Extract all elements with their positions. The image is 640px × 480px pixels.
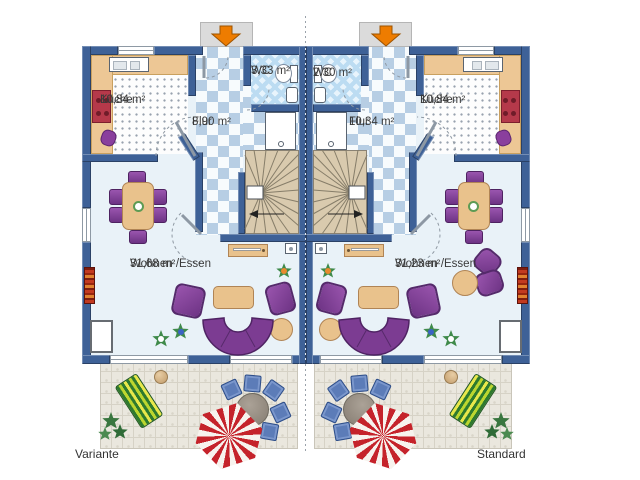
dining-chair xyxy=(488,207,503,223)
sideboard-knob xyxy=(347,249,350,252)
sink-drainer xyxy=(472,61,482,70)
kitchen-wall xyxy=(82,154,158,162)
window xyxy=(82,208,91,242)
flower-blossom xyxy=(158,336,164,342)
hall-floor-doorgap xyxy=(243,86,251,112)
dining-chair xyxy=(129,230,147,244)
flower-blossom xyxy=(178,329,184,335)
window xyxy=(521,208,530,242)
terrace-chair xyxy=(350,374,368,392)
sideboard xyxy=(344,244,384,257)
armchair xyxy=(405,282,442,320)
kitchen-wall xyxy=(416,55,424,96)
wc-wall xyxy=(251,104,299,112)
terrace-window xyxy=(110,355,188,364)
flower-blossom xyxy=(325,268,331,274)
beach-ball xyxy=(444,370,458,384)
wall xyxy=(243,46,306,55)
closet-knob xyxy=(328,141,334,147)
dining-chair xyxy=(465,230,483,244)
wc-wall xyxy=(243,55,251,86)
caption-standard: Standard xyxy=(477,447,526,461)
stair-wall xyxy=(306,234,392,242)
sideboard xyxy=(228,244,268,257)
window xyxy=(118,46,154,55)
kitchen-sink xyxy=(109,57,149,72)
stair-wall xyxy=(220,234,306,242)
hall-closet xyxy=(316,112,347,150)
hall-closet xyxy=(265,112,296,150)
wc-wall xyxy=(313,104,361,112)
dining-table xyxy=(458,182,490,230)
wall xyxy=(188,355,230,364)
kitchen-sink xyxy=(463,57,503,72)
beach-ball xyxy=(154,370,168,384)
floorplan-canvas: Küche 10,84 m² Flur 8,90 m² WC 3,33 m² W… xyxy=(0,0,640,480)
room-area: 31,68 m² xyxy=(130,255,175,274)
flower-blossom xyxy=(448,336,454,342)
side-table xyxy=(270,318,293,341)
caption-variante: Variante xyxy=(75,447,119,461)
wall xyxy=(409,46,458,55)
wall-niche xyxy=(499,320,522,353)
sideboard-knob xyxy=(262,249,265,252)
table-flowers xyxy=(468,201,479,212)
dining-chair xyxy=(152,189,167,205)
wall-niche xyxy=(90,320,113,353)
room-area: 3,33 m² xyxy=(251,62,290,81)
wall xyxy=(521,46,530,208)
wc-washbasin xyxy=(314,87,326,103)
flower-blossom xyxy=(428,329,434,335)
stair-wall xyxy=(367,172,374,234)
room-area: 31,23 m² xyxy=(395,255,440,274)
sink-drainer xyxy=(130,61,140,70)
party-wall-axis xyxy=(305,48,306,362)
coffee-table xyxy=(358,286,399,309)
dining-chair xyxy=(488,189,503,205)
hall-floor xyxy=(196,47,243,235)
window xyxy=(458,46,494,55)
sideboard-top xyxy=(351,248,379,251)
wall-box-dot xyxy=(289,247,293,251)
wc-wall xyxy=(361,55,369,86)
wc-washbasin xyxy=(286,87,298,103)
wall-box-dot xyxy=(319,247,323,251)
hall-wall xyxy=(409,152,417,232)
terrace-chair xyxy=(243,374,261,392)
stair-wall xyxy=(238,172,245,234)
terrace-chair xyxy=(333,422,353,442)
property-line xyxy=(305,364,306,452)
dining-table xyxy=(122,182,154,230)
entrance-porch xyxy=(359,22,412,47)
stove xyxy=(501,90,520,123)
wall xyxy=(82,46,91,208)
wall xyxy=(382,355,424,364)
hall-wall xyxy=(195,152,203,232)
terrace-window xyxy=(230,355,292,364)
bookshelf xyxy=(517,267,528,304)
staircase xyxy=(313,150,367,234)
staircase xyxy=(245,150,299,234)
room-area: 10,84 m² xyxy=(420,91,465,110)
flower-blossom xyxy=(281,268,287,274)
room-area: 8,90 m² xyxy=(192,113,231,132)
wall-box xyxy=(315,243,327,254)
side-table xyxy=(319,318,342,341)
kitchen-wall xyxy=(454,154,530,162)
hall-floor-doorgap xyxy=(361,86,369,112)
stove-burners xyxy=(511,98,516,103)
wall xyxy=(306,46,369,55)
coffee-table xyxy=(213,286,254,309)
bookshelf xyxy=(84,267,95,304)
dining-chair xyxy=(152,207,167,223)
kitchen-wall xyxy=(188,55,196,96)
wall xyxy=(82,355,110,364)
room-area: 10,84 m² xyxy=(100,91,145,110)
closet-knob xyxy=(278,141,284,147)
room-area: 2,30 m² xyxy=(313,64,352,83)
armchair xyxy=(170,282,207,320)
terrace-window xyxy=(424,355,502,364)
sideboard-top xyxy=(233,248,261,251)
terrace-chair xyxy=(260,422,280,442)
terrace-window xyxy=(320,355,382,364)
sink-basin xyxy=(113,61,127,70)
table-flowers xyxy=(133,201,144,212)
room-area: 10,34 m² xyxy=(349,113,394,132)
wall-box xyxy=(285,243,297,254)
sink-basin xyxy=(485,61,499,70)
wall xyxy=(154,46,203,55)
party-wall xyxy=(306,46,313,364)
wall xyxy=(502,355,530,364)
entrance-porch xyxy=(200,22,253,47)
property-line xyxy=(305,16,306,46)
